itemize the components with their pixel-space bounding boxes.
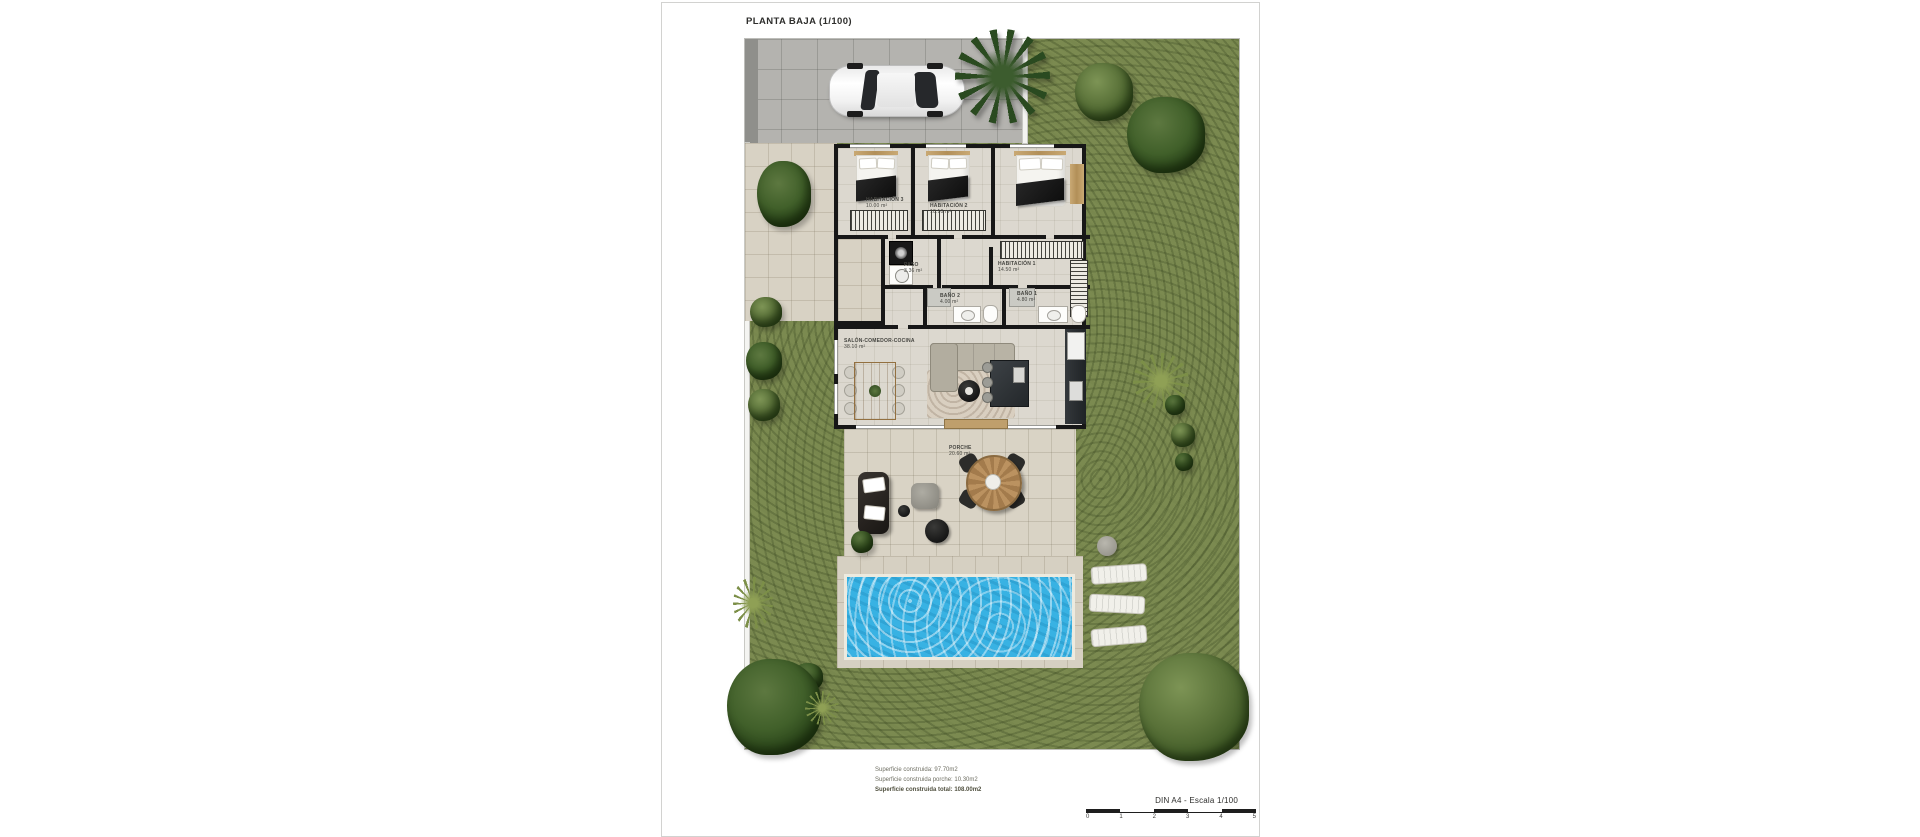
bed-pillow: [1041, 158, 1063, 171]
car-roof: [877, 73, 915, 107]
table-plant: [869, 385, 881, 397]
floor-plan-page: PLANTA BAJA (1/100): [0, 0, 1920, 837]
bush: [748, 389, 780, 421]
bed-pillow: [877, 158, 896, 170]
plot-garden: HABITACIÓN 3 10.00 m² HABITACIÓN 2 10.10…: [744, 38, 1240, 750]
wall: [942, 285, 1018, 289]
tree: [1127, 97, 1205, 173]
scale-tick: 0: [1086, 814, 1089, 820]
pouf-dark: [925, 519, 949, 543]
sun-lounger: [1089, 594, 1146, 615]
wall: [896, 235, 954, 239]
day-bed-pillow: [862, 477, 886, 494]
room-label-hab2: HABITACIÓN 2 10.10 m²: [930, 203, 968, 215]
plan-sheet: PLANTA BAJA (1/100): [661, 2, 1260, 837]
room-label-paso: PASO 3.36 m²: [904, 262, 922, 274]
wall: [937, 235, 941, 289]
pool-side-table: [1097, 536, 1117, 556]
bush: [750, 297, 782, 327]
scale-bar: [1086, 808, 1256, 813]
island-stool: [982, 392, 993, 403]
tv-console: [944, 419, 1008, 429]
kitchen-sink: [1069, 381, 1083, 401]
driveway-wall-shadow: [745, 39, 758, 143]
wall: [962, 235, 1046, 239]
house: HABITACIÓN 3 10.00 m² HABITACIÓN 2 10.10…: [834, 144, 1086, 429]
wardrobe: [1000, 241, 1084, 259]
window: [834, 384, 838, 414]
basin: [1047, 310, 1061, 321]
bush: [746, 342, 782, 380]
wall: [989, 247, 993, 289]
scale-bar-block: DIN A4 - Escala 1/100 0 1 2 3 4 5: [1086, 796, 1256, 820]
basin: [961, 310, 975, 321]
grass-tuft: [805, 691, 839, 725]
plan-title: PLANTA BAJA (1/100): [746, 16, 852, 27]
day-bed: [858, 472, 889, 534]
scale-label: DIN A4 - Escala 1/100: [1086, 796, 1256, 805]
porch-plant: [851, 531, 873, 553]
window: [926, 144, 966, 148]
scale-tick: 4: [1219, 814, 1222, 820]
coffee-table-tray: [965, 387, 973, 395]
wall: [1054, 235, 1090, 239]
window: [1010, 144, 1054, 148]
bed-pillow: [859, 158, 878, 170]
outdoor-table-center: [985, 474, 1001, 490]
car-wheel: [927, 63, 943, 69]
washer-drum: [895, 247, 907, 259]
summary-porch: Superficie construida porche: 10.30m2: [875, 775, 981, 785]
scale-tick: 2: [1153, 814, 1156, 820]
scale-tick: 1: [1119, 814, 1122, 820]
bush: [1171, 423, 1195, 447]
room-label-bano1: BAÑO 1 4.80 m²: [1017, 291, 1037, 303]
bed-pillow: [1019, 157, 1042, 170]
bed-pillow: [949, 158, 967, 170]
scale-numbers: 0 1 2 3 4 5: [1086, 814, 1256, 820]
day-bed-pillow: [863, 505, 885, 521]
pouf-light: [911, 483, 939, 509]
toilet: [1071, 305, 1086, 323]
kitchen-island: [990, 360, 1029, 407]
room-label-hab3: HABITACIÓN 3 10.00 m²: [866, 197, 904, 209]
fridge: [1067, 332, 1085, 360]
kitchen-counter: [1065, 329, 1086, 424]
sun-lounger: [1090, 625, 1147, 648]
room-label-porche: PORCHE 20.60 m²: [949, 445, 972, 457]
entry-notch: [838, 239, 885, 325]
tree: [1139, 653, 1249, 761]
wall: [908, 325, 1090, 329]
bush: [1165, 395, 1185, 415]
room-label-hab1: HABITACIÓN 1 14.50 m²: [998, 261, 1036, 273]
bathroom-vanity: [953, 306, 981, 323]
dining-area: [842, 360, 904, 422]
car-rear-window: [913, 72, 939, 108]
bush: [1175, 453, 1193, 471]
bedroom-bench: [1070, 164, 1084, 204]
car-wheel: [927, 111, 943, 117]
summary-total: Superficie construida total: 108.00m2: [875, 785, 981, 795]
pouf-dark-small: [898, 505, 910, 517]
island-stool: [982, 377, 993, 388]
toilet: [983, 305, 998, 323]
room-label-bano2: BAÑO 2 4.00 m²: [940, 293, 960, 305]
wall: [838, 325, 898, 329]
island-sink: [1013, 367, 1025, 383]
window: [850, 144, 890, 148]
scale-tick: 5: [1253, 814, 1256, 820]
wall: [991, 148, 995, 235]
palm-tree: [955, 29, 1050, 124]
bed-pillow: [931, 158, 950, 170]
outdoor-dining-set: [960, 449, 1024, 513]
summary-built: Superficie construida: 97.70m2: [875, 765, 981, 775]
wall: [911, 148, 915, 235]
dining-table: [854, 362, 896, 420]
sun-lounger: [1090, 563, 1147, 585]
window: [834, 340, 838, 374]
swimming-pool: [844, 574, 1075, 660]
tree: [1075, 63, 1133, 121]
pine-tree: [757, 161, 811, 227]
wardrobe: [850, 210, 908, 231]
car-wheel: [847, 111, 863, 117]
room-label-salon: SALÓN-COMEDOR-COCINA 38.10 m²: [844, 338, 915, 350]
sofa-chaise: [930, 343, 958, 392]
car: [829, 65, 963, 119]
bathroom-vanity: [1038, 306, 1068, 323]
car-wheel: [847, 63, 863, 69]
area-summary: Superficie construida: 97.70m2 Superfici…: [875, 765, 981, 795]
scale-tick: 3: [1186, 814, 1189, 820]
grass-tuft: [733, 577, 773, 629]
island-stool: [982, 362, 993, 373]
coffee-table: [958, 380, 980, 402]
wall: [1002, 285, 1006, 325]
